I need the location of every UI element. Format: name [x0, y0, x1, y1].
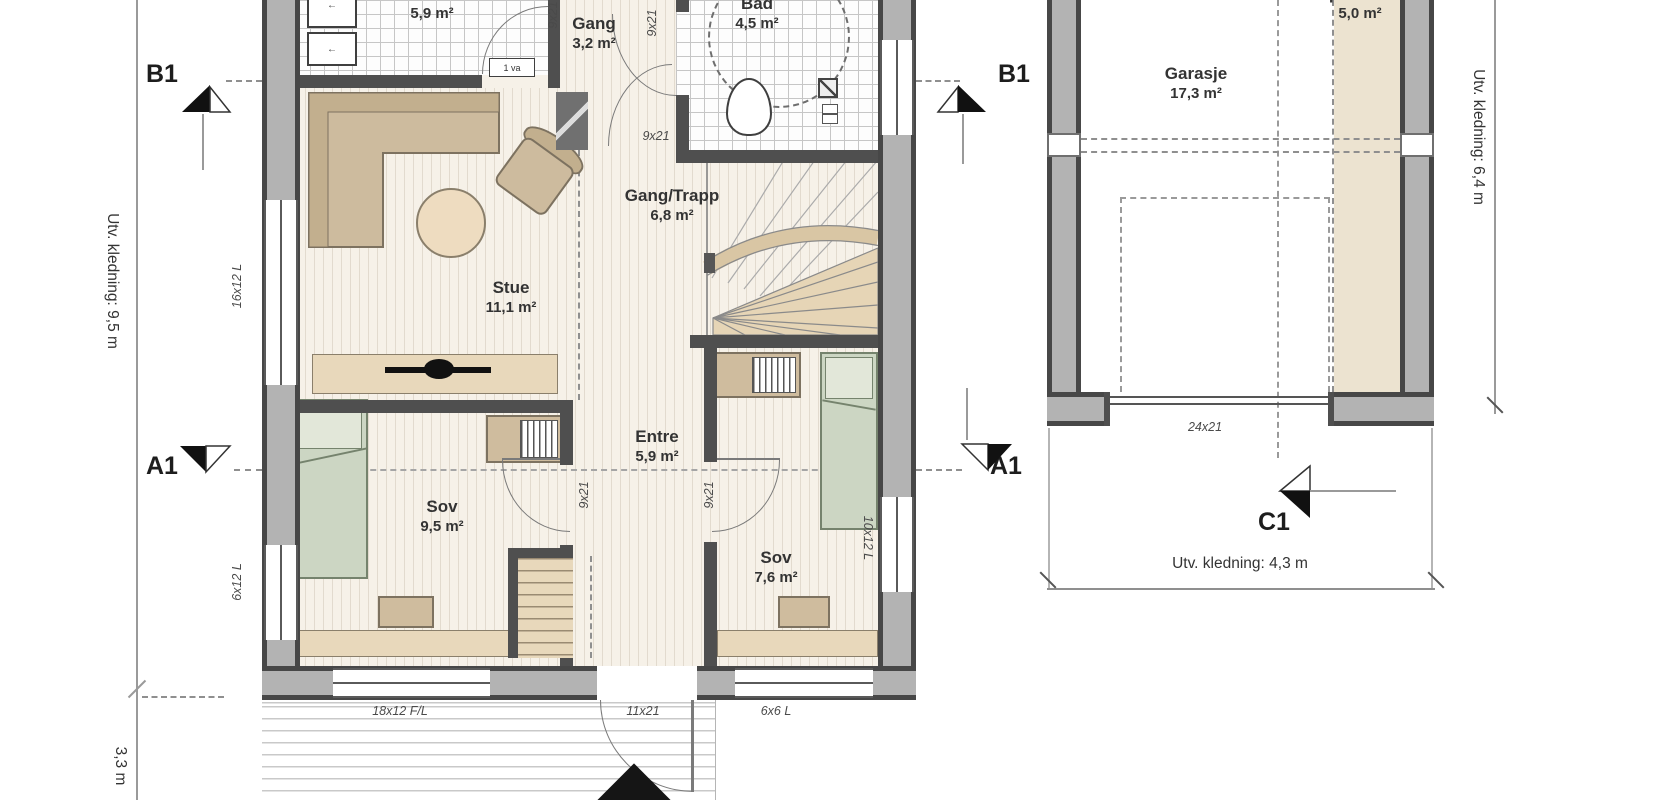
wardrobe-rail [752, 357, 796, 393]
beam-line [1081, 151, 1400, 153]
dimension-line-garage [1047, 588, 1435, 590]
window-front-small [735, 668, 873, 698]
desk-chair [778, 596, 830, 628]
window-sov2 [880, 497, 914, 592]
opening-label-door: 9x21 [546, 0, 560, 45]
room-area: 6,8 m² [592, 207, 752, 225]
dimension-extension-line [1048, 428, 1050, 588]
room-area: 9,5 m² [382, 518, 502, 536]
room-area: 4,5 m² [697, 15, 817, 33]
window-sov1 [264, 545, 298, 640]
tv-lens [424, 359, 454, 379]
section-marker-c1: C1 [1258, 508, 1290, 537]
room-label-garasje: Garasje 17,3 m² [1136, 64, 1256, 103]
room-label-sov1: Sov 9,5 m² [382, 497, 502, 536]
garage-wall [1400, 0, 1434, 426]
cabinet-box: 1 va [489, 58, 535, 77]
beam-line [1081, 138, 1400, 140]
opening-label-door: 9x21 [645, 0, 659, 53]
garage-door-line [1108, 396, 1330, 398]
opening-label-door: 9x21 [577, 465, 591, 525]
section-arrow-icon [936, 82, 988, 114]
garage-door-line [1108, 403, 1330, 405]
wall-notch [1047, 133, 1081, 157]
room-name: Bad [697, 0, 817, 15]
room-name: Stue [451, 278, 571, 299]
room-area: 5,9 m² [597, 448, 717, 466]
wall [676, 0, 689, 12]
room-name: Sov [716, 548, 836, 569]
section-arrow-line [966, 388, 968, 440]
opening-label-front-door: 11x21 [603, 704, 683, 718]
opening-label-sov1-window: 6x12 L [230, 526, 244, 638]
bed-pillow [825, 357, 873, 399]
opening-label-sov2-window: 10x12 L [861, 480, 875, 596]
desk-bench [298, 630, 510, 657]
room-label-bad: Bad 4,5 m² [697, 0, 817, 33]
opening-label-door: 9x21 [702, 465, 716, 525]
closet-wall [508, 548, 518, 658]
section-line-a1 [916, 469, 962, 471]
sportsbod-divider [1332, 0, 1334, 392]
garage-wall [1047, 392, 1108, 426]
garage-wall [1047, 0, 1081, 426]
dimension-line-left [136, 0, 138, 800]
dimension-extension-line [142, 696, 224, 698]
section-arrow-line [1310, 490, 1396, 492]
sportsbod-floor [1334, 0, 1400, 392]
door-jamb [1328, 392, 1334, 426]
open-boundary-line [590, 556, 592, 658]
room-name: Garasje [1136, 64, 1256, 85]
section-arrow-line [962, 114, 964, 164]
wall [560, 413, 573, 465]
room-area: 11,1 m² [451, 299, 571, 317]
wardrobe-rail [520, 420, 558, 458]
window-bad [880, 40, 914, 135]
round-table [416, 188, 486, 258]
opening-label-door: 9x21 [620, 129, 692, 143]
garage-wall [1330, 392, 1434, 426]
room-area: 5,9 m² [372, 5, 492, 23]
door-leaf [691, 700, 694, 792]
open-boundary-line [578, 150, 580, 400]
opening-label-front-window: 18x12 F/L [350, 704, 450, 718]
room-label-gang-trapp: Gang/Trapp 6,8 m² [592, 186, 752, 225]
floor-drain-icon [818, 78, 838, 98]
opening-label-stue-window: 16x12 L [230, 228, 244, 344]
dimension-text-deck: 3,3 m [111, 730, 129, 800]
room-label-sov2: Sov 7,6 m² [716, 548, 836, 587]
desk-chair [378, 596, 434, 628]
opening-label-garage-door: 24x21 [1165, 420, 1245, 434]
section-line-a1 [234, 469, 262, 471]
duct-shaft [556, 92, 588, 150]
window-stue [264, 200, 298, 385]
section-arrow-icon [180, 82, 232, 114]
section-marker-b1-right: B1 [998, 60, 1030, 89]
parking-outline [1120, 197, 1330, 392]
room-label-entre: Entre 5,9 m² [597, 427, 717, 466]
door-leaf [712, 458, 780, 460]
front-door-opening [597, 666, 697, 700]
section-marker-a1-left: A1 [146, 452, 178, 481]
opening-label-front-window-small: 6x6 L [736, 704, 816, 718]
closet-shelves [518, 558, 573, 658]
wall [296, 400, 573, 413]
window-front [333, 668, 490, 698]
shower-valve-icon [822, 104, 838, 124]
room-label-vask: Vask /Tekn. 5,9 m² [372, 0, 492, 23]
dimension-text-garage-side: Utv. kledning: 6,4 m [1469, 29, 1487, 245]
room-label-sportsbod: Sportsbod 5,0 m² [1295, 0, 1425, 23]
door-jamb [1104, 392, 1110, 426]
dimension-text-left: Utv. kledning: 9,5 m [103, 173, 121, 389]
room-area: 5,0 m² [1295, 5, 1425, 23]
dimension-text-garage-front: Utv. kledning: 4,3 m [1140, 555, 1340, 573]
dimension-extension-line [1431, 428, 1433, 588]
dryer-icon: ← [307, 32, 357, 66]
floor-plan-canvas: Utv. kledning: 9,5 m 3,3 m ← ← [0, 0, 1670, 800]
room-name: Gang/Trapp [592, 186, 752, 207]
room-area: 17,3 m² [1136, 85, 1256, 103]
room-name: Entre [597, 427, 717, 448]
desk-bench [717, 630, 878, 657]
room-label-stue: Stue 11,1 m² [451, 278, 571, 317]
wall-notch [1400, 133, 1434, 157]
section-arrow-icon [960, 442, 1014, 472]
dimension-line-right [1494, 0, 1496, 414]
wall [690, 335, 878, 348]
section-arrow-line [202, 114, 204, 170]
section-arrow-icon [178, 444, 232, 474]
washer-icon: ← [307, 0, 357, 28]
section-marker-b1-left: B1 [146, 60, 178, 89]
wall [676, 150, 878, 163]
staircase [690, 150, 878, 335]
room-area: 7,6 m² [716, 569, 836, 587]
room-name: Sov [382, 497, 502, 518]
